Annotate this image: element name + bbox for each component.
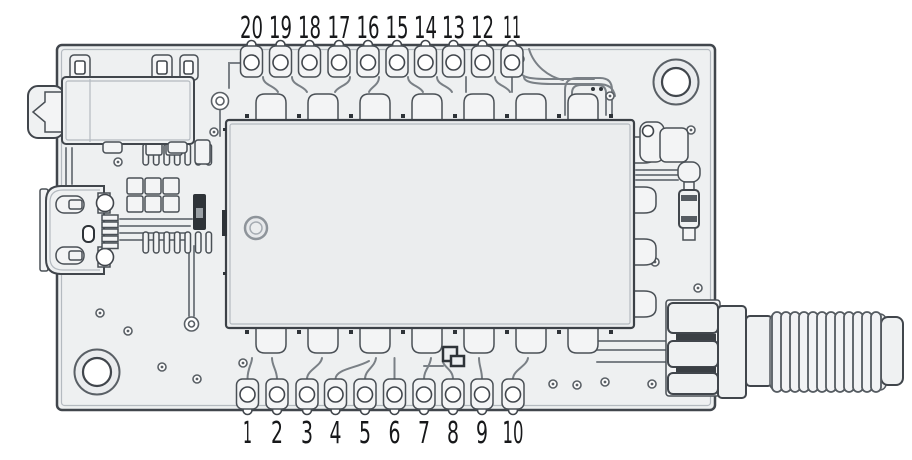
sma-flange bbox=[718, 306, 746, 398]
mounting-hole-bottom-left bbox=[75, 350, 120, 395]
pin-label-15: 15 bbox=[386, 11, 409, 46]
rf-module bbox=[222, 114, 634, 334]
sma-end-cap bbox=[881, 317, 903, 385]
pin-pad-3 bbox=[296, 379, 318, 415]
pin-pad-10 bbox=[502, 379, 524, 415]
pin-label-1: 1 bbox=[243, 416, 252, 451]
pin-label-3: 3 bbox=[301, 416, 313, 451]
pin-label-11: 11 bbox=[503, 11, 521, 46]
pcb-pinout-diagram: 20 19 18 17 16 15 14 13 12 11 1 2 3 4 5 … bbox=[0, 0, 912, 460]
pin-pad-4 bbox=[325, 379, 347, 415]
micro-usb-connector bbox=[40, 186, 118, 274]
pin-label-7: 7 bbox=[418, 416, 430, 451]
pin-label-16: 16 bbox=[357, 11, 380, 46]
pin-label-9: 9 bbox=[476, 416, 488, 451]
smd-component bbox=[127, 178, 143, 194]
pin-label-19: 19 bbox=[269, 11, 292, 46]
smd-component bbox=[127, 196, 143, 212]
jack-body bbox=[62, 77, 194, 144]
pin-pad-5 bbox=[354, 379, 376, 415]
sma-antenna-connector bbox=[666, 300, 903, 398]
antenna-matching-component bbox=[678, 162, 700, 240]
pin-label-18: 18 bbox=[298, 11, 321, 46]
pin-label-2: 2 bbox=[271, 416, 283, 451]
pin-label-17: 17 bbox=[328, 11, 351, 46]
pin-label-4: 4 bbox=[330, 416, 342, 451]
pin-pad-6 bbox=[384, 379, 406, 415]
pin-pad-2 bbox=[266, 379, 288, 415]
pin-label-5: 5 bbox=[359, 416, 371, 451]
sma-neck bbox=[746, 316, 772, 386]
ground-comb bbox=[143, 232, 212, 253]
mounting-hole-top-right bbox=[654, 60, 699, 105]
pin-pad-7 bbox=[413, 379, 435, 415]
smd-component bbox=[163, 196, 179, 212]
smd-component bbox=[145, 196, 161, 212]
pin-label-13: 13 bbox=[442, 11, 465, 46]
sma-threads bbox=[772, 312, 881, 392]
pin-label-8: 8 bbox=[447, 416, 459, 451]
diagram-canvas: 20 19 18 17 16 15 14 13 12 11 1 2 3 4 5 … bbox=[0, 0, 912, 460]
smd-component bbox=[163, 178, 179, 194]
shield-clip bbox=[640, 122, 688, 162]
pin-pad-8 bbox=[442, 379, 464, 415]
usb-opening bbox=[83, 226, 94, 242]
smd-component bbox=[145, 178, 161, 194]
pin-pad-9 bbox=[471, 379, 493, 415]
pin-label-14: 14 bbox=[414, 11, 437, 46]
pin-label-12: 12 bbox=[471, 11, 494, 46]
pin-label-20: 20 bbox=[240, 11, 263, 46]
pin-label-6: 6 bbox=[389, 416, 401, 451]
pin-label-10: 10 bbox=[503, 416, 524, 451]
pin-pad-1 bbox=[237, 379, 259, 415]
